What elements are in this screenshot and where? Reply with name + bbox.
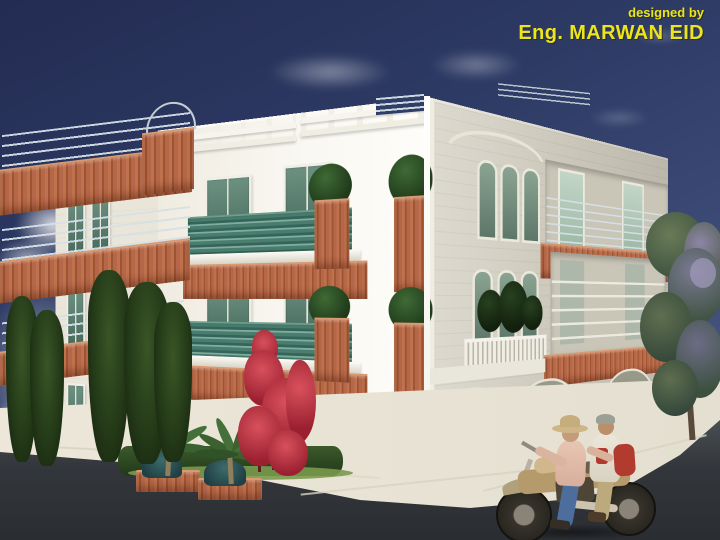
- cloud-wisp: [588, 108, 650, 128]
- front-rider-hat-crown: [560, 415, 580, 427]
- rear-rider-boot: [588, 511, 607, 523]
- bougainvillea: [286, 360, 316, 440]
- cloud-wisp: [268, 54, 392, 90]
- arched-window: [477, 158, 497, 240]
- rear-rider-cap: [596, 414, 615, 424]
- credit-prefix: designed by: [518, 5, 704, 21]
- designer-credit: designed by Eng. MARWAN EID: [518, 5, 704, 46]
- terracotta-planter: [314, 318, 349, 383]
- rear-rider-backpack: [613, 443, 636, 476]
- tree-foliage: [652, 360, 698, 416]
- cloud-wisp: [430, 50, 522, 80]
- terracotta-balcony-tower: [142, 127, 194, 195]
- arched-window: [522, 167, 540, 244]
- agave-plant: [204, 460, 246, 486]
- tree-foliage: [690, 258, 716, 288]
- architectural-rendering: designed by Eng. MARWAN EID: [0, 0, 720, 540]
- cypress-tree: [30, 310, 64, 466]
- bougainvillea: [268, 430, 308, 476]
- credit-name: Eng. MARWAN EID: [518, 21, 704, 46]
- arched-window: [500, 163, 519, 243]
- terracotta-planter: [314, 198, 349, 269]
- cypress-tree: [154, 302, 192, 462]
- terracotta-planter: [394, 195, 428, 292]
